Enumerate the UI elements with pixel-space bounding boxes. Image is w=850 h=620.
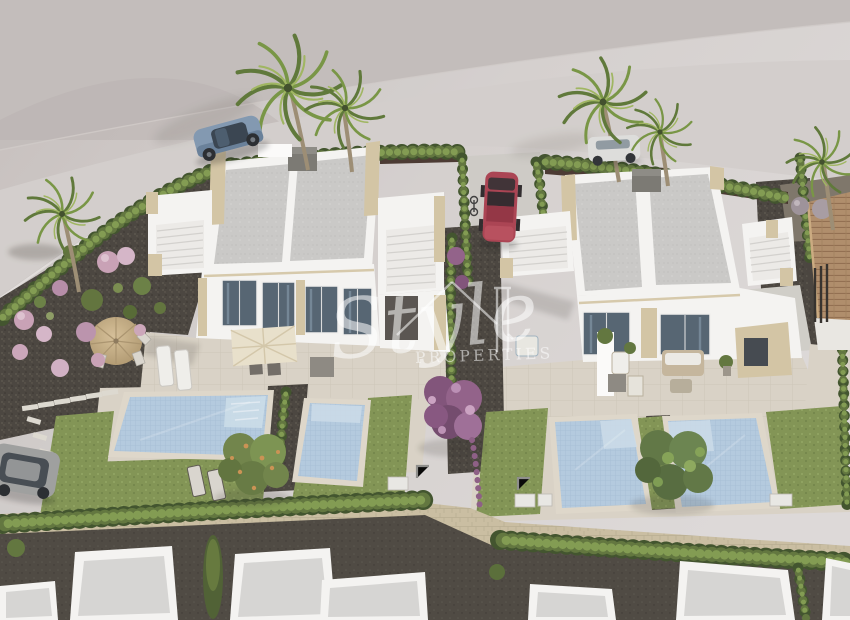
aerial-render: Style PROPERTIES [0, 0, 850, 620]
sun-glow-overlay [0, 0, 850, 620]
render-scene: Style PROPERTIES [0, 0, 850, 620]
